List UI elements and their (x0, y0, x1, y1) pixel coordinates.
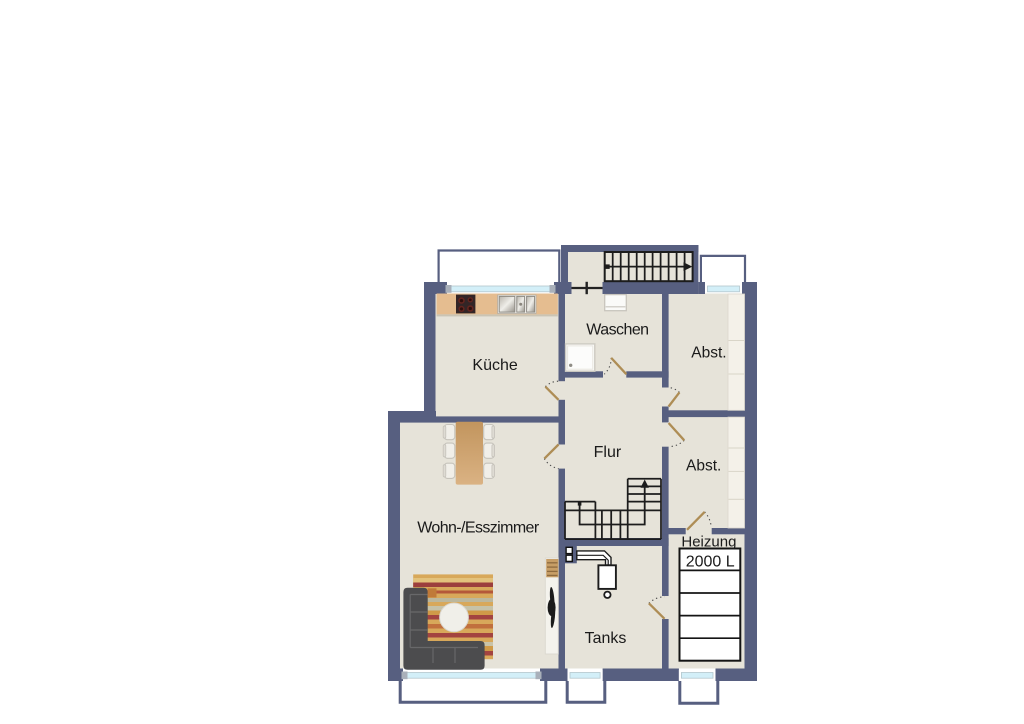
svg-text:Waschen: Waschen (586, 322, 648, 339)
svg-text:Abst.: Abst. (691, 345, 726, 362)
svg-text:Küche: Küche (472, 357, 517, 374)
svg-text:Flur: Flur (594, 444, 622, 461)
svg-text:Heizung: Heizung (681, 533, 736, 550)
svg-text:Abst.: Abst. (686, 457, 721, 474)
svg-text:Wohn-/Esszimmer: Wohn-/Esszimmer (417, 520, 540, 537)
svg-text:2000 L: 2000 L (686, 554, 735, 571)
svg-text:Tanks: Tanks (585, 630, 627, 647)
